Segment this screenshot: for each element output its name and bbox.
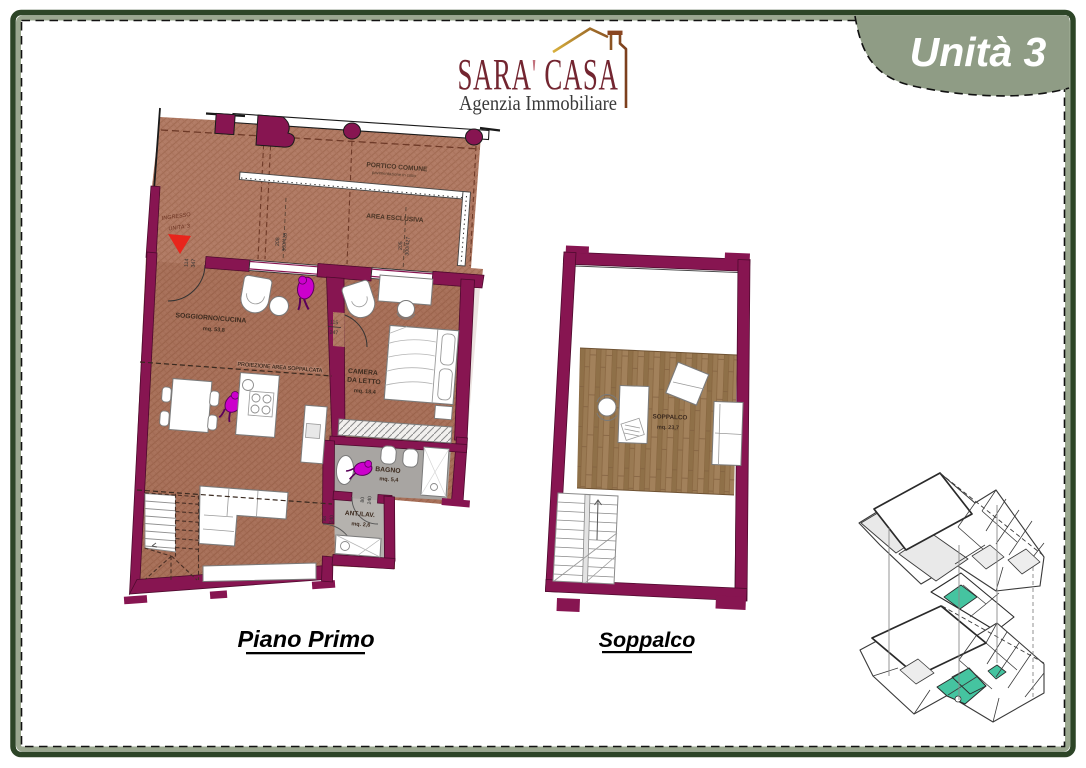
svg-text:Soppalco: Soppalco: [599, 628, 696, 652]
svg-text:mq. 23,7: mq. 23,7: [657, 425, 679, 432]
svg-text:347: 347: [191, 259, 198, 268]
svg-text:115: 115: [330, 320, 339, 327]
svg-text:205: 205: [398, 241, 405, 250]
svg-text:Piano Primo: Piano Primo: [237, 626, 374, 652]
svg-text:Unità 3: Unità 3: [910, 29, 1047, 75]
svg-text:98: 98: [322, 516, 328, 522]
svg-text:Agenzia Immobiliare: Agenzia Immobiliare: [459, 91, 617, 115]
svg-text:80: 80: [360, 497, 366, 503]
svg-text:SOPPALCO: SOPPALCO: [652, 413, 687, 421]
svg-text:114: 114: [184, 258, 191, 267]
svg-text:240: 240: [367, 496, 374, 505]
svg-text:240: 240: [329, 515, 336, 524]
svg-text:208: 208: [275, 237, 282, 246]
svg-text:247: 247: [329, 330, 338, 337]
